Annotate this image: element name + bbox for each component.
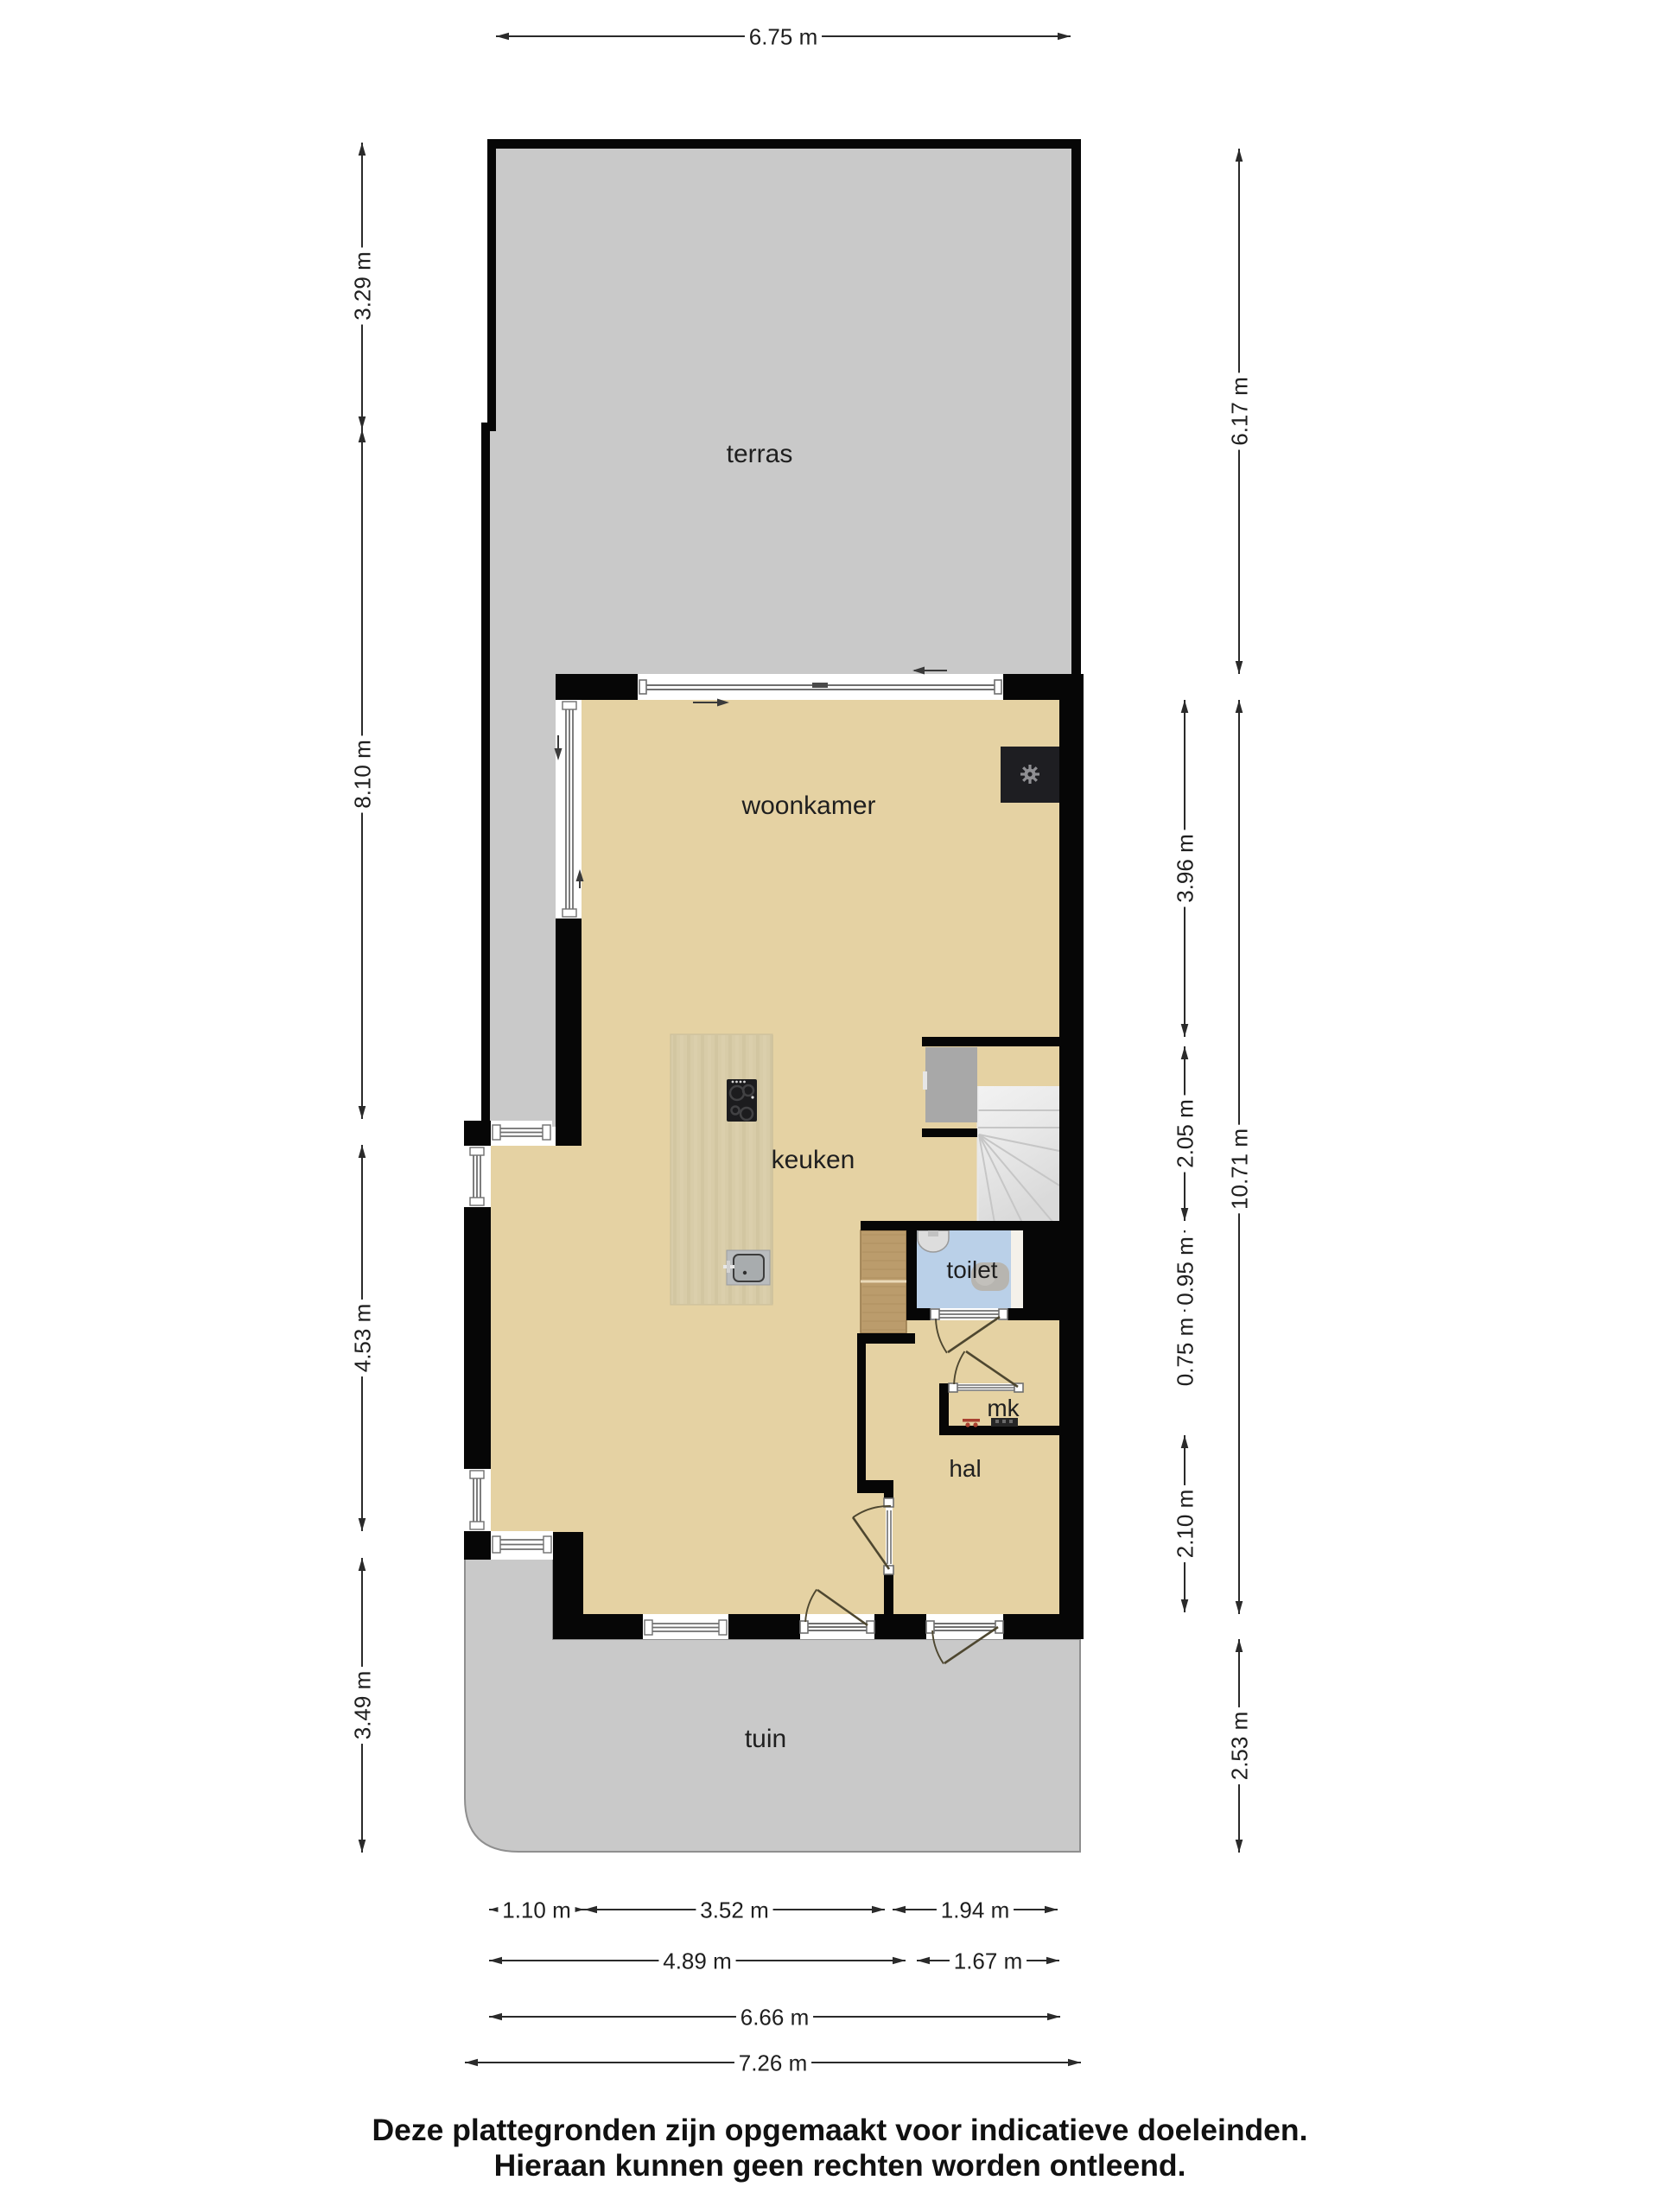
svg-text:2.10 m: 2.10 m	[1172, 1490, 1198, 1559]
svg-text:terras: terras	[727, 440, 793, 468]
svg-text:0.75 m: 0.75 m	[1172, 1318, 1198, 1387]
svg-text:1.67 m: 1.67 m	[954, 1948, 1023, 1974]
svg-text:Hieraan kunnen geen rechten wo: Hieraan kunnen geen rechten worden ontle…	[494, 2148, 1186, 2183]
svg-text:0.95 m: 0.95 m	[1172, 1236, 1198, 1306]
svg-text:8.10 m: 8.10 m	[349, 740, 375, 809]
svg-text:toilet: toilet	[946, 1256, 997, 1283]
svg-text:1.10 m: 1.10 m	[502, 1897, 571, 1923]
svg-text:6.75 m: 6.75 m	[749, 23, 818, 49]
svg-text:keuken: keuken	[772, 1146, 855, 1174]
svg-text:1.94 m: 1.94 m	[941, 1897, 1010, 1923]
svg-text:hal: hal	[949, 1455, 981, 1482]
svg-text:2.05 m: 2.05 m	[1172, 1099, 1198, 1168]
svg-text:7.26 m: 7.26 m	[739, 2050, 808, 2075]
svg-text:Deze plattegronden zijn opgema: Deze plattegronden zijn opgemaakt voor i…	[372, 2113, 1308, 2147]
svg-text:3.49 m: 3.49 m	[349, 1671, 375, 1740]
svg-text:3.52 m: 3.52 m	[700, 1897, 769, 1923]
svg-text:tuin: tuin	[745, 1725, 786, 1753]
svg-text:4.89 m: 4.89 m	[663, 1948, 732, 1974]
svg-text:6.17 m: 6.17 m	[1226, 377, 1252, 446]
svg-text:3.29 m: 3.29 m	[349, 251, 375, 321]
svg-text:6.66 m: 6.66 m	[741, 2004, 810, 2030]
svg-text:woonkamer: woonkamer	[741, 791, 875, 820]
svg-text:10.71 m: 10.71 m	[1226, 1128, 1252, 1210]
svg-text:3.96 m: 3.96 m	[1172, 834, 1198, 903]
svg-text:2.53 m: 2.53 m	[1226, 1712, 1252, 1781]
svg-text:4.53 m: 4.53 m	[349, 1304, 375, 1373]
svg-text:mk: mk	[987, 1395, 1020, 1421]
